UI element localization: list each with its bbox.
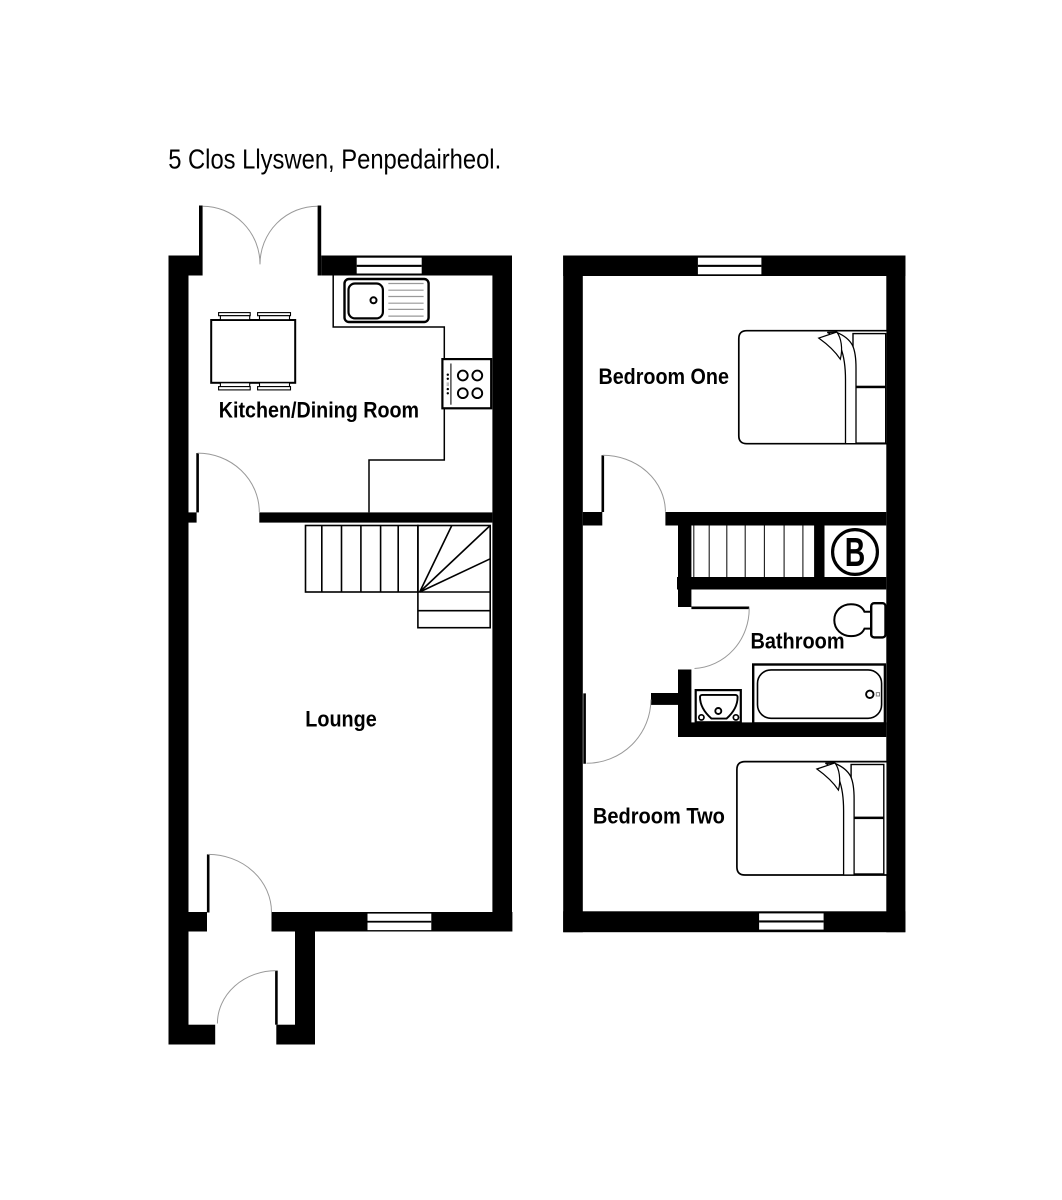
svg-text:Lounge: Lounge [305, 707, 377, 732]
svg-text:Bathroom: Bathroom [750, 629, 844, 654]
svg-text:Bedroom One: Bedroom One [598, 364, 729, 389]
svg-text:B: B [845, 529, 866, 575]
svg-text:Kitchen/Dining Room: Kitchen/Dining Room [219, 398, 419, 423]
svg-text:5 Clos Llyswen, Penpedairheol.: 5 Clos Llyswen, Penpedairheol. [168, 144, 501, 175]
svg-text:Bedroom Two: Bedroom Two [593, 804, 725, 829]
